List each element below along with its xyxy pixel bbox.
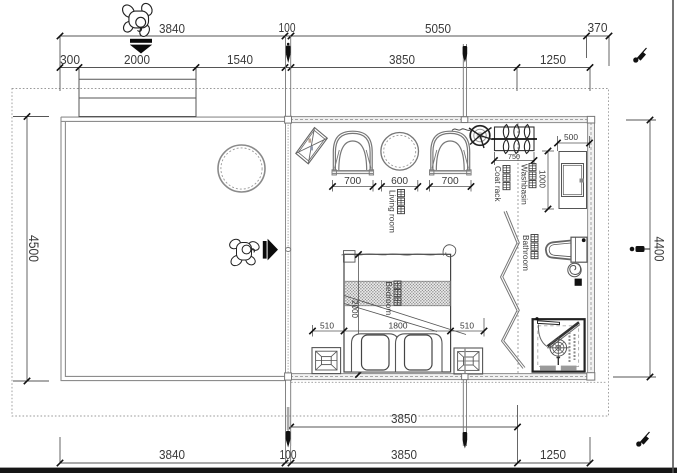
- svg-text:Washbasin: Washbasin: [520, 164, 530, 205]
- svg-text:600: 600: [391, 176, 408, 187]
- svg-text:2000: 2000: [350, 300, 360, 318]
- svg-text:3850: 3850: [389, 52, 415, 67]
- svg-text:1800: 1800: [389, 321, 408, 331]
- svg-text:700: 700: [442, 176, 459, 187]
- svg-text:3850: 3850: [391, 411, 417, 426]
- svg-text:4400: 4400: [652, 237, 667, 262]
- svg-text:4500: 4500: [26, 235, 41, 262]
- svg-text:100: 100: [280, 447, 297, 462]
- svg-text:700: 700: [344, 176, 361, 187]
- svg-text:100: 100: [279, 20, 296, 35]
- svg-text:3840: 3840: [159, 21, 185, 36]
- svg-text:510: 510: [320, 321, 334, 331]
- svg-text:1540: 1540: [227, 52, 253, 67]
- svg-text:1250: 1250: [540, 52, 566, 67]
- svg-text:1250: 1250: [540, 447, 566, 462]
- svg-text:2000: 2000: [124, 52, 150, 67]
- svg-text:300: 300: [60, 52, 80, 67]
- svg-text:370: 370: [588, 20, 608, 35]
- svg-text:5050: 5050: [425, 21, 451, 36]
- svg-text:Bedroom: Bedroom: [384, 282, 394, 316]
- svg-text:3850: 3850: [391, 447, 417, 462]
- svg-text:500: 500: [564, 132, 578, 142]
- svg-text:750: 750: [508, 152, 520, 161]
- svg-text:3840: 3840: [159, 447, 185, 462]
- svg-text:1000: 1000: [538, 170, 548, 188]
- svg-text:510: 510: [460, 321, 474, 331]
- svg-text:Living room: Living room: [388, 190, 398, 233]
- svg-text:Coat rack: Coat rack: [493, 166, 503, 202]
- svg-text:Bathroom: Bathroom: [521, 235, 531, 271]
